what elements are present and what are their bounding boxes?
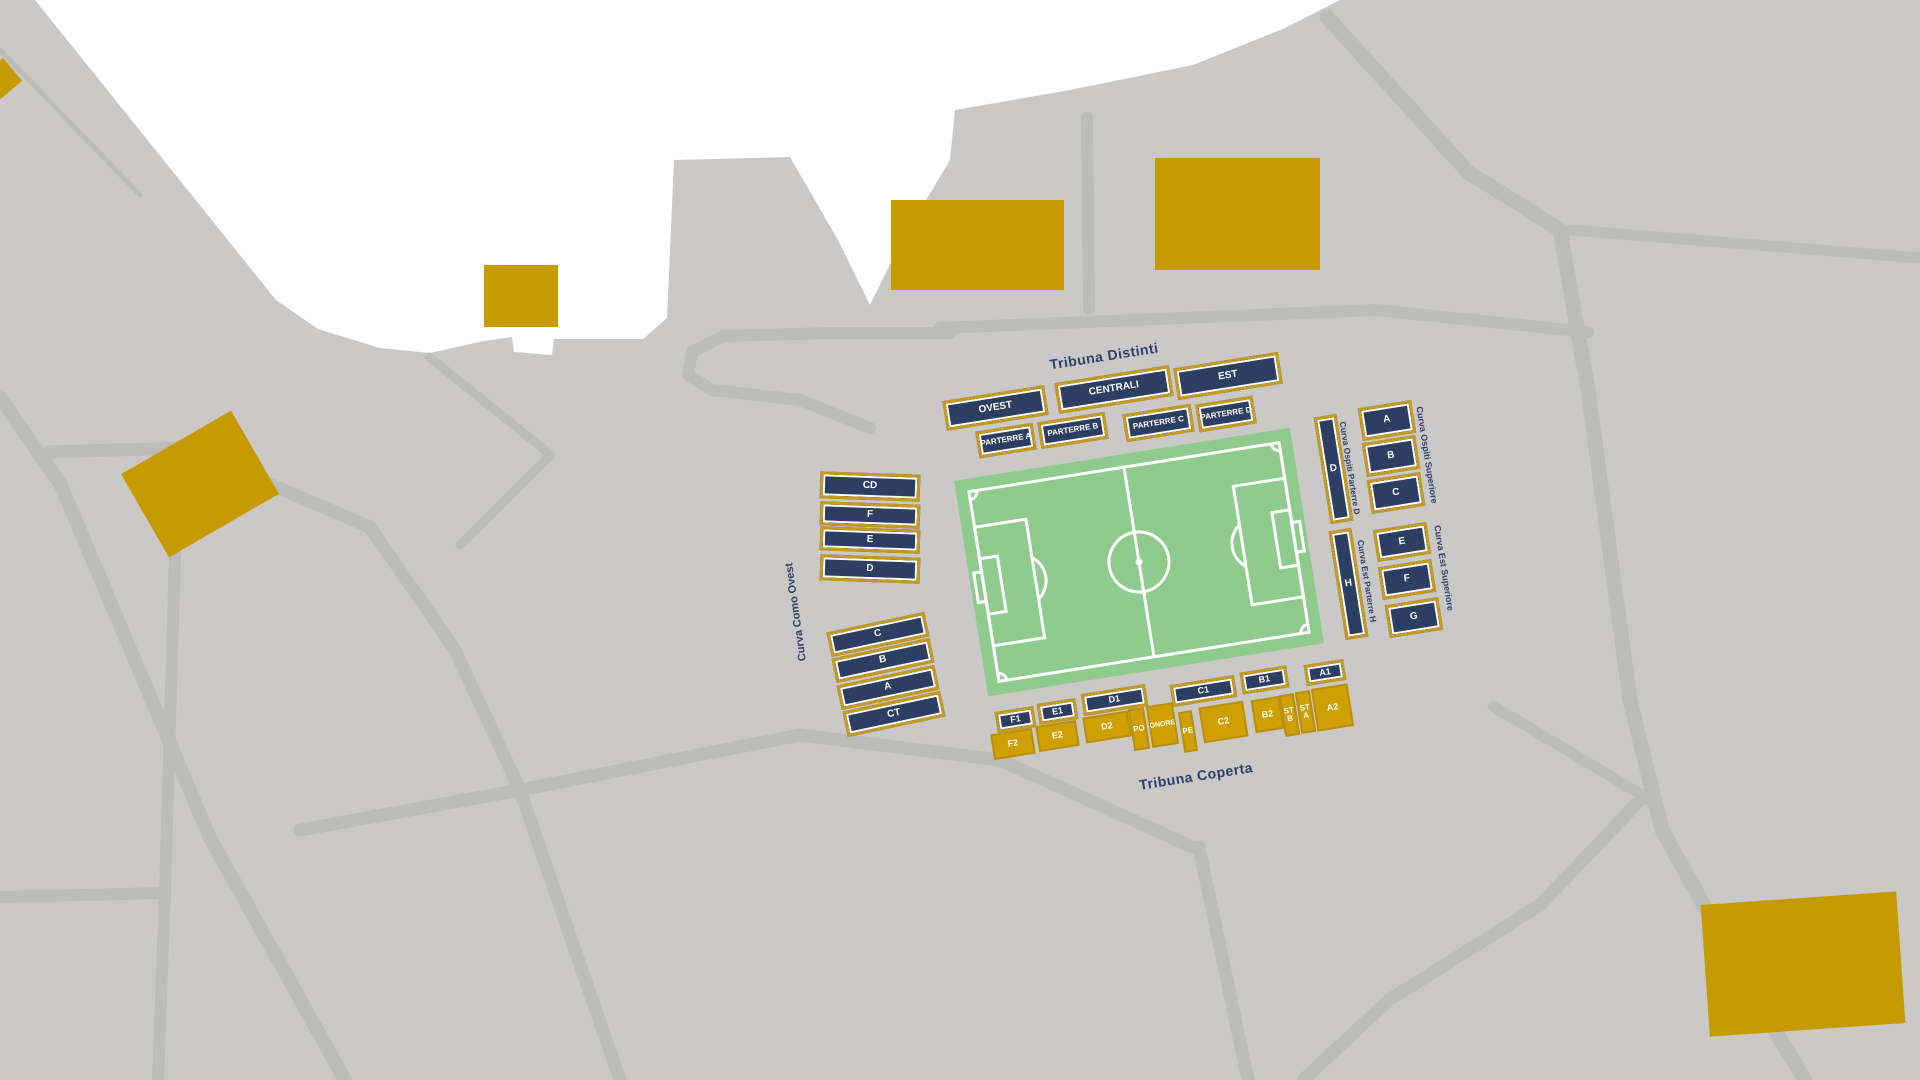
road [940,310,1588,332]
base-map [0,0,1920,1080]
section-label: B2 [1261,708,1274,719]
section-west-cd[interactable]: CD [820,471,921,501]
road [0,893,165,897]
section-label: F2 [1007,739,1019,750]
section-label: D [1329,463,1338,475]
section-label: F1 [1009,714,1021,725]
section-label: CENTRALI [1088,380,1140,398]
building-block [121,411,279,558]
section-label: PARTERRE B [1047,422,1099,438]
section-c2[interactable]: C2 [1198,701,1248,744]
section-label: E [1398,536,1406,547]
section-label: C2 [1217,716,1230,727]
section-label: PARTERRE C [1132,415,1184,431]
section-label: G [1409,611,1418,623]
lake-area [35,0,1340,355]
building-block [1701,891,1906,1036]
road [429,357,551,545]
section-west-f[interactable]: F [820,501,921,528]
road [48,448,620,1080]
section-label: PARTERRE D [1200,406,1252,422]
section-label: ST A [1298,703,1311,721]
section-label: F [1403,573,1411,584]
section-label: E2 [1051,730,1063,741]
section-label: A [1383,414,1392,426]
road [1199,847,1248,1080]
road [688,333,950,428]
section-label: E [866,535,873,546]
section-label: A1 [1319,666,1332,677]
section-label: CD [863,481,878,492]
stadium-map-viewport: OVESTCENTRALIESTPARTERRE APARTERRE BPART… [0,0,1920,1080]
section-label: H [1344,578,1353,590]
section-label: F [867,510,873,521]
section-label: A [883,681,892,693]
road [1087,118,1089,308]
section-label: C1 [1197,685,1210,696]
section-label: PE [1182,726,1194,736]
section-label: OVEST [977,400,1012,416]
road [1303,795,1645,1080]
section-label: ST B [1282,706,1295,724]
section-label: E1 [1051,705,1063,716]
road [1570,230,1920,258]
section-label: D1 [1108,694,1121,705]
building-block [484,265,558,327]
section-label: ONORE [1149,719,1176,730]
road [300,735,1199,850]
section-label: PARTERRE A [980,432,1032,448]
section-label: B [1387,450,1396,462]
section-label: D [866,564,874,575]
section-label: D2 [1101,721,1114,732]
section-west-d[interactable]: D [820,554,921,583]
section-label: CT [886,707,901,720]
section-a2[interactable]: A2 [1310,683,1353,731]
section-label: C [873,628,882,640]
section-label: B1 [1258,674,1271,685]
section-label: B [878,654,887,666]
section-label: C [1392,487,1401,499]
section-west-e[interactable]: E [820,526,921,553]
building-block [1155,158,1320,270]
section-label: EST [1218,369,1239,382]
road [1493,706,1650,800]
building-block [891,200,1064,290]
section-label: A2 [1326,701,1339,712]
section-label: PO [1133,724,1146,734]
